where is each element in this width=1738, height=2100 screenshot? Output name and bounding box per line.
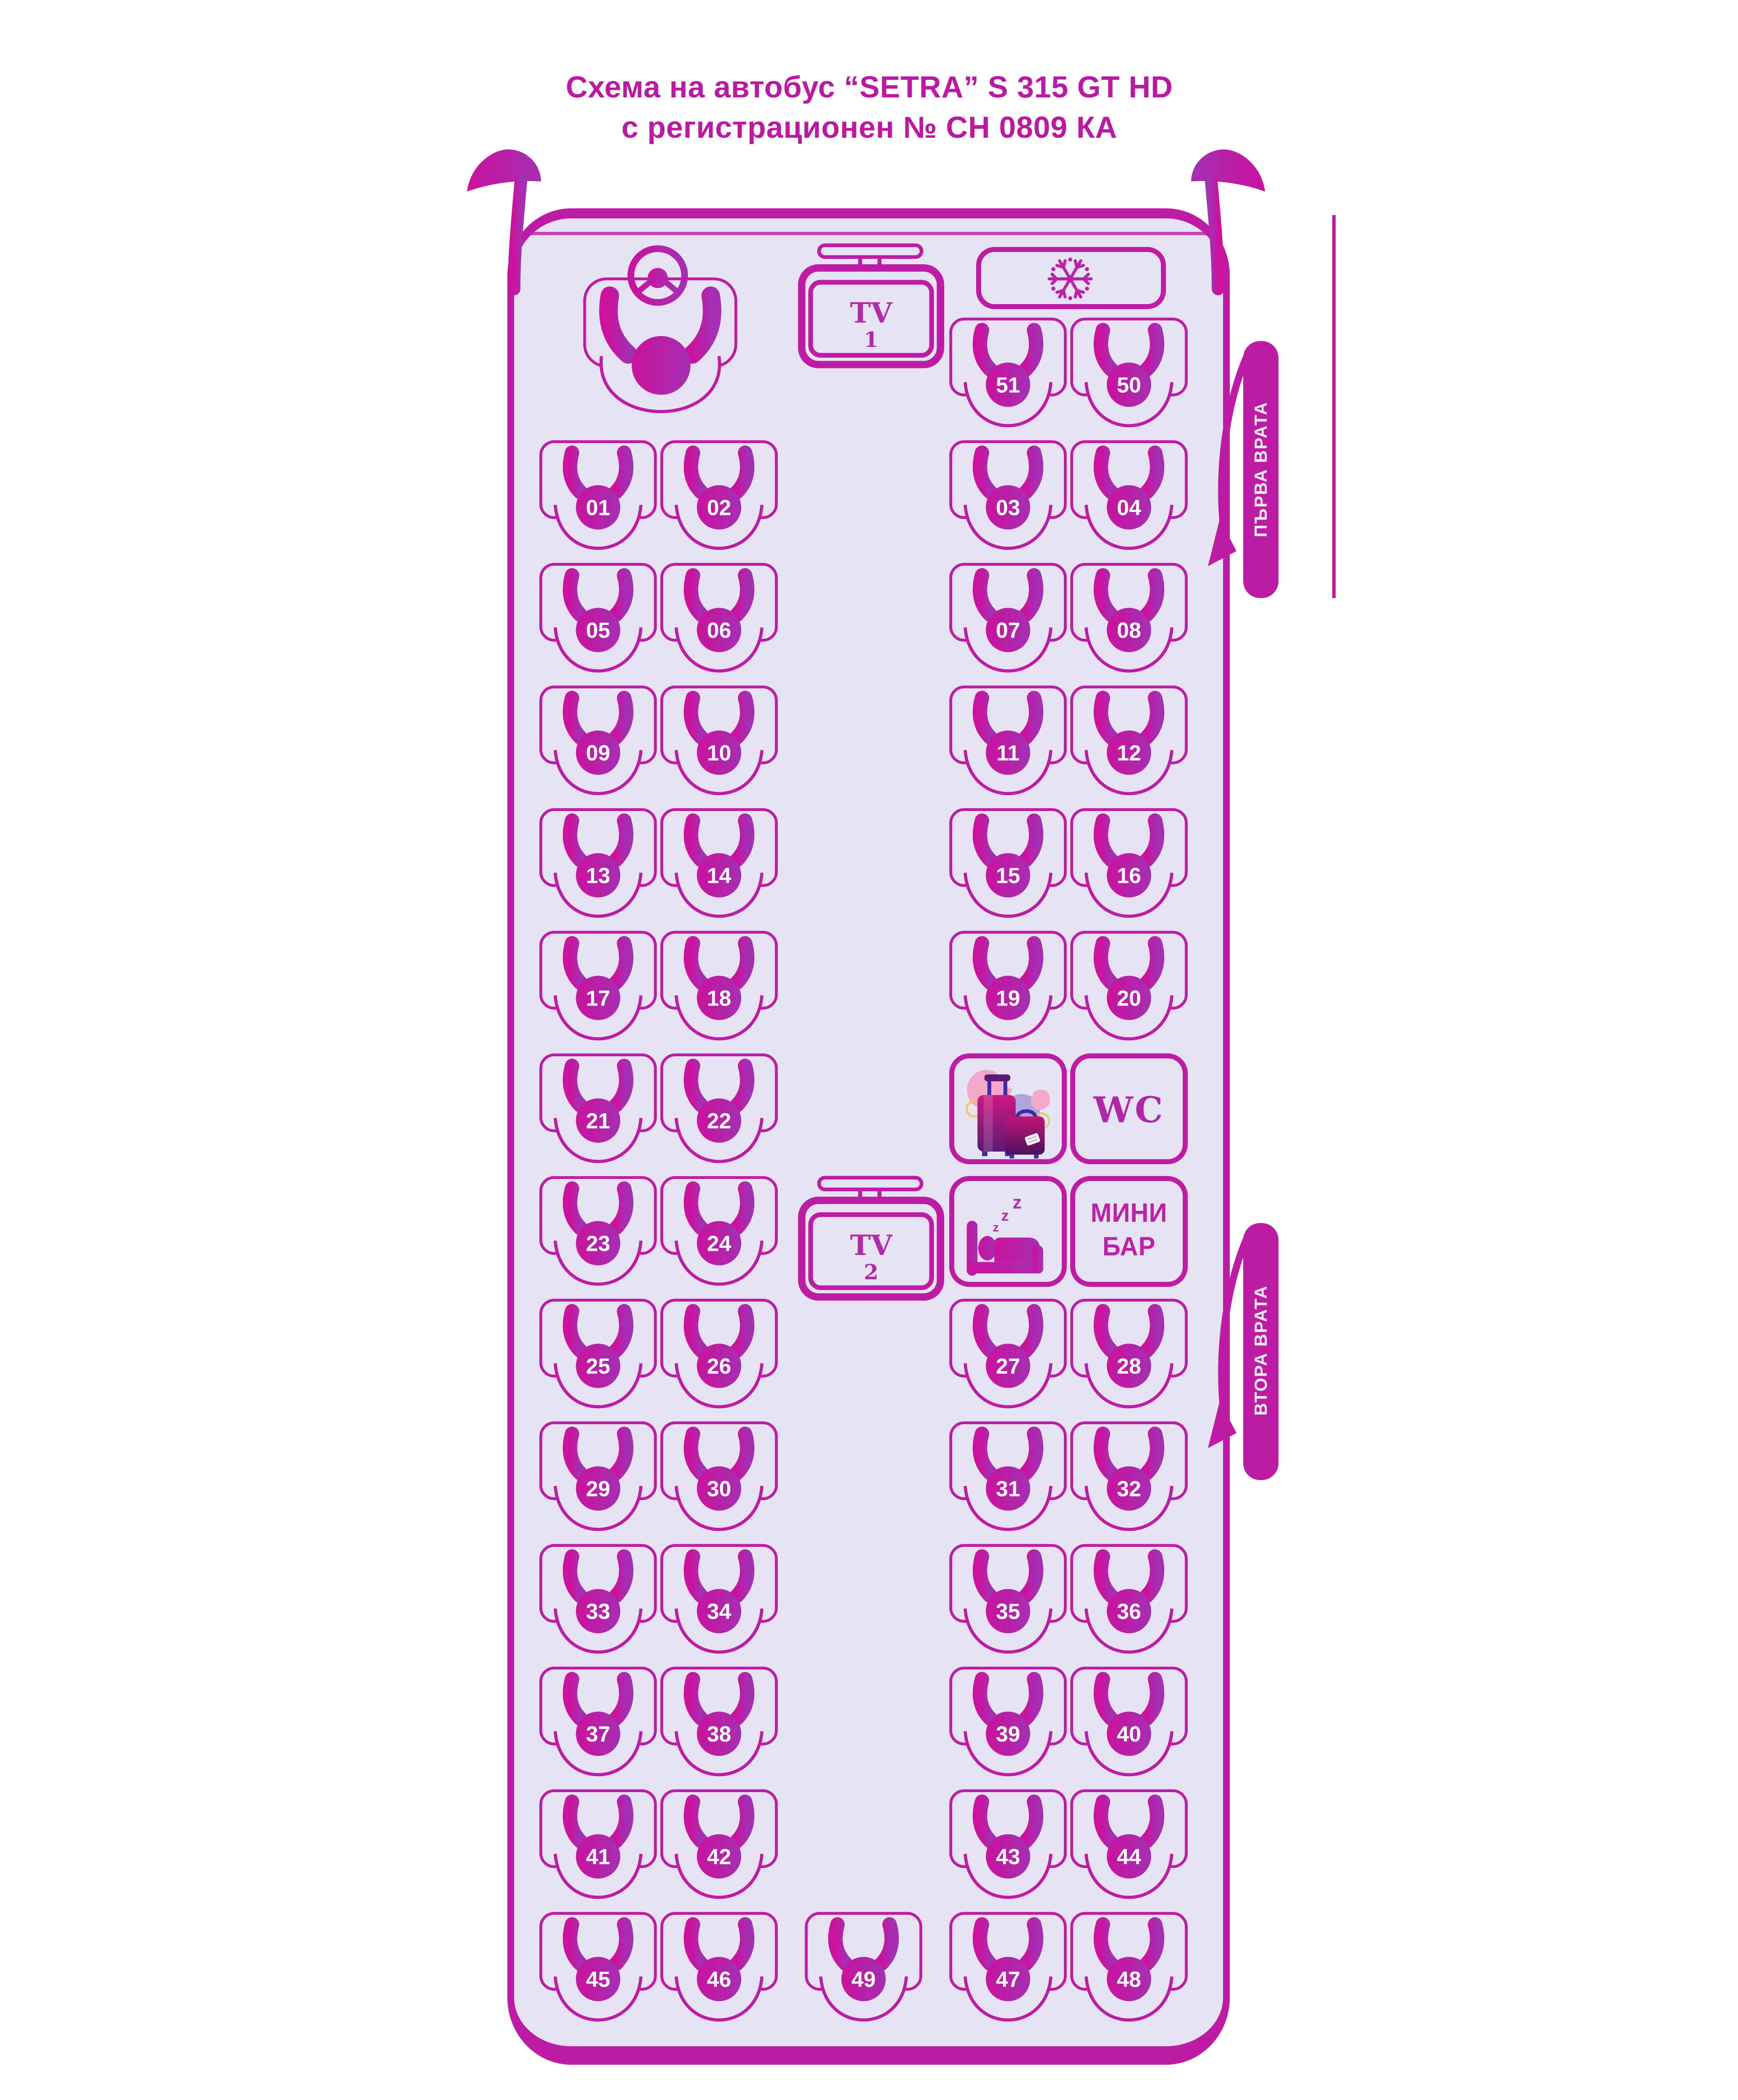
svg-text:25: 25: [585, 1354, 610, 1378]
seat-24[interactable]: 24: [661, 1176, 778, 1287]
seat-37[interactable]: 37: [539, 1667, 656, 1777]
seat-15[interactable]: 15: [949, 808, 1067, 919]
svg-text:08: 08: [1117, 618, 1141, 643]
svg-text:26: 26: [707, 1354, 732, 1378]
svg-text:44: 44: [1117, 1845, 1141, 1869]
svg-text:13: 13: [585, 864, 610, 888]
seat-01[interactable]: 01: [539, 440, 656, 551]
seat-40[interactable]: 40: [1070, 1667, 1188, 1777]
svg-text:05: 05: [585, 618, 610, 643]
svg-text:29: 29: [585, 1477, 610, 1501]
seat-23[interactable]: 23: [539, 1176, 656, 1287]
seat-10[interactable]: 10: [661, 685, 778, 796]
seat-13[interactable]: 13: [539, 808, 656, 919]
seat-19[interactable]: 19: [949, 931, 1067, 1042]
seat-02[interactable]: 02: [661, 440, 778, 551]
svg-text:37: 37: [585, 1722, 610, 1746]
svg-text:17: 17: [585, 986, 610, 1011]
seat-43[interactable]: 43: [949, 1789, 1067, 1900]
svg-text:21: 21: [585, 1109, 610, 1133]
svg-text:42: 42: [707, 1845, 732, 1869]
seat-33[interactable]: 33: [539, 1544, 656, 1655]
seat-12[interactable]: 12: [1070, 685, 1188, 796]
seat-51[interactable]: 51: [949, 318, 1067, 428]
svg-text:41: 41: [585, 1845, 610, 1869]
seat-30[interactable]: 30: [661, 1421, 778, 1532]
seat-26[interactable]: 26: [661, 1299, 778, 1410]
seat-14[interactable]: 14: [661, 808, 778, 919]
seat-09[interactable]: 09: [539, 685, 656, 796]
svg-text:32: 32: [1117, 1477, 1141, 1501]
svg-text:12: 12: [1117, 741, 1141, 765]
svg-text:16: 16: [1117, 864, 1141, 888]
svg-text:34: 34: [707, 1599, 732, 1624]
seat-31[interactable]: 31: [949, 1421, 1067, 1532]
svg-text:51: 51: [996, 373, 1020, 397]
svg-text:27: 27: [996, 1354, 1020, 1378]
svg-text:49: 49: [851, 1967, 876, 1992]
seat-28[interactable]: 28: [1070, 1299, 1188, 1410]
bus-seating-diagram: Схема на автобус “SETRA” S 315 GT HD с р…: [0, 0, 1738, 2100]
seat-41[interactable]: 41: [539, 1789, 656, 1900]
seat-11[interactable]: 11: [949, 685, 1067, 796]
seat-05[interactable]: 05: [539, 563, 656, 674]
seat-48[interactable]: 48: [1070, 1912, 1188, 2023]
seat-07[interactable]: 07: [949, 563, 1067, 674]
svg-text:20: 20: [1117, 986, 1141, 1011]
svg-text:06: 06: [707, 618, 732, 643]
svg-text:40: 40: [1117, 1722, 1141, 1746]
svg-text:28: 28: [1117, 1354, 1141, 1378]
svg-text:43: 43: [996, 1845, 1020, 1869]
svg-text:46: 46: [707, 1967, 732, 1992]
seat-04[interactable]: 04: [1070, 440, 1188, 551]
svg-text:04: 04: [1117, 496, 1141, 520]
svg-text:45: 45: [585, 1967, 610, 1992]
svg-text:18: 18: [707, 986, 732, 1011]
seat-08[interactable]: 08: [1070, 563, 1188, 674]
seat-32[interactable]: 32: [1070, 1421, 1188, 1532]
seat-39[interactable]: 39: [949, 1667, 1067, 1777]
seat-21[interactable]: 21: [539, 1053, 656, 1164]
svg-text:39: 39: [996, 1722, 1020, 1746]
svg-text:15: 15: [996, 864, 1020, 888]
svg-text:11: 11: [997, 741, 1020, 765]
svg-text:48: 48: [1117, 1967, 1141, 1992]
seat-47[interactable]: 47: [949, 1912, 1067, 2023]
svg-text:30: 30: [707, 1477, 732, 1501]
svg-text:22: 22: [707, 1109, 732, 1133]
svg-text:10: 10: [707, 741, 732, 765]
seat-42[interactable]: 42: [661, 1789, 778, 1900]
svg-text:33: 33: [585, 1599, 610, 1624]
seat-36[interactable]: 36: [1070, 1544, 1188, 1655]
seat-22[interactable]: 22: [661, 1053, 778, 1164]
svg-text:36: 36: [1117, 1599, 1141, 1624]
seat-34[interactable]: 34: [661, 1544, 778, 1655]
seat-46[interactable]: 46: [661, 1912, 778, 2023]
seat-35[interactable]: 35: [949, 1544, 1067, 1655]
seat-17[interactable]: 17: [539, 931, 656, 1042]
seat-45[interactable]: 45: [539, 1912, 656, 2023]
seat-50[interactable]: 50: [1070, 318, 1188, 428]
seat-16[interactable]: 16: [1070, 808, 1188, 919]
svg-text:09: 09: [585, 741, 610, 765]
svg-text:35: 35: [996, 1599, 1020, 1624]
svg-text:50: 50: [1117, 373, 1141, 397]
seat-38[interactable]: 38: [661, 1667, 778, 1777]
seat-29[interactable]: 29: [539, 1421, 656, 1532]
svg-text:23: 23: [585, 1231, 610, 1256]
seat-06[interactable]: 06: [661, 563, 778, 674]
seats-layer: 0102050609101314171821222324252629303334…: [0, 0, 1738, 2100]
seat-03[interactable]: 03: [949, 440, 1067, 551]
svg-text:14: 14: [707, 864, 732, 888]
seat-25[interactable]: 25: [539, 1299, 656, 1410]
svg-text:24: 24: [707, 1231, 732, 1256]
svg-text:03: 03: [996, 496, 1020, 520]
svg-text:31: 31: [996, 1477, 1020, 1501]
svg-text:07: 07: [996, 618, 1020, 643]
seat-27[interactable]: 27: [949, 1299, 1067, 1410]
seat-49[interactable]: 49: [805, 1912, 922, 2023]
svg-text:01: 01: [585, 496, 610, 520]
svg-text:47: 47: [996, 1967, 1020, 1992]
seat-18[interactable]: 18: [661, 931, 778, 1042]
svg-text:19: 19: [996, 986, 1020, 1011]
seat-20[interactable]: 20: [1070, 931, 1188, 1042]
seat-44[interactable]: 44: [1070, 1789, 1188, 1900]
svg-text:02: 02: [707, 496, 732, 520]
svg-text:38: 38: [707, 1722, 732, 1746]
